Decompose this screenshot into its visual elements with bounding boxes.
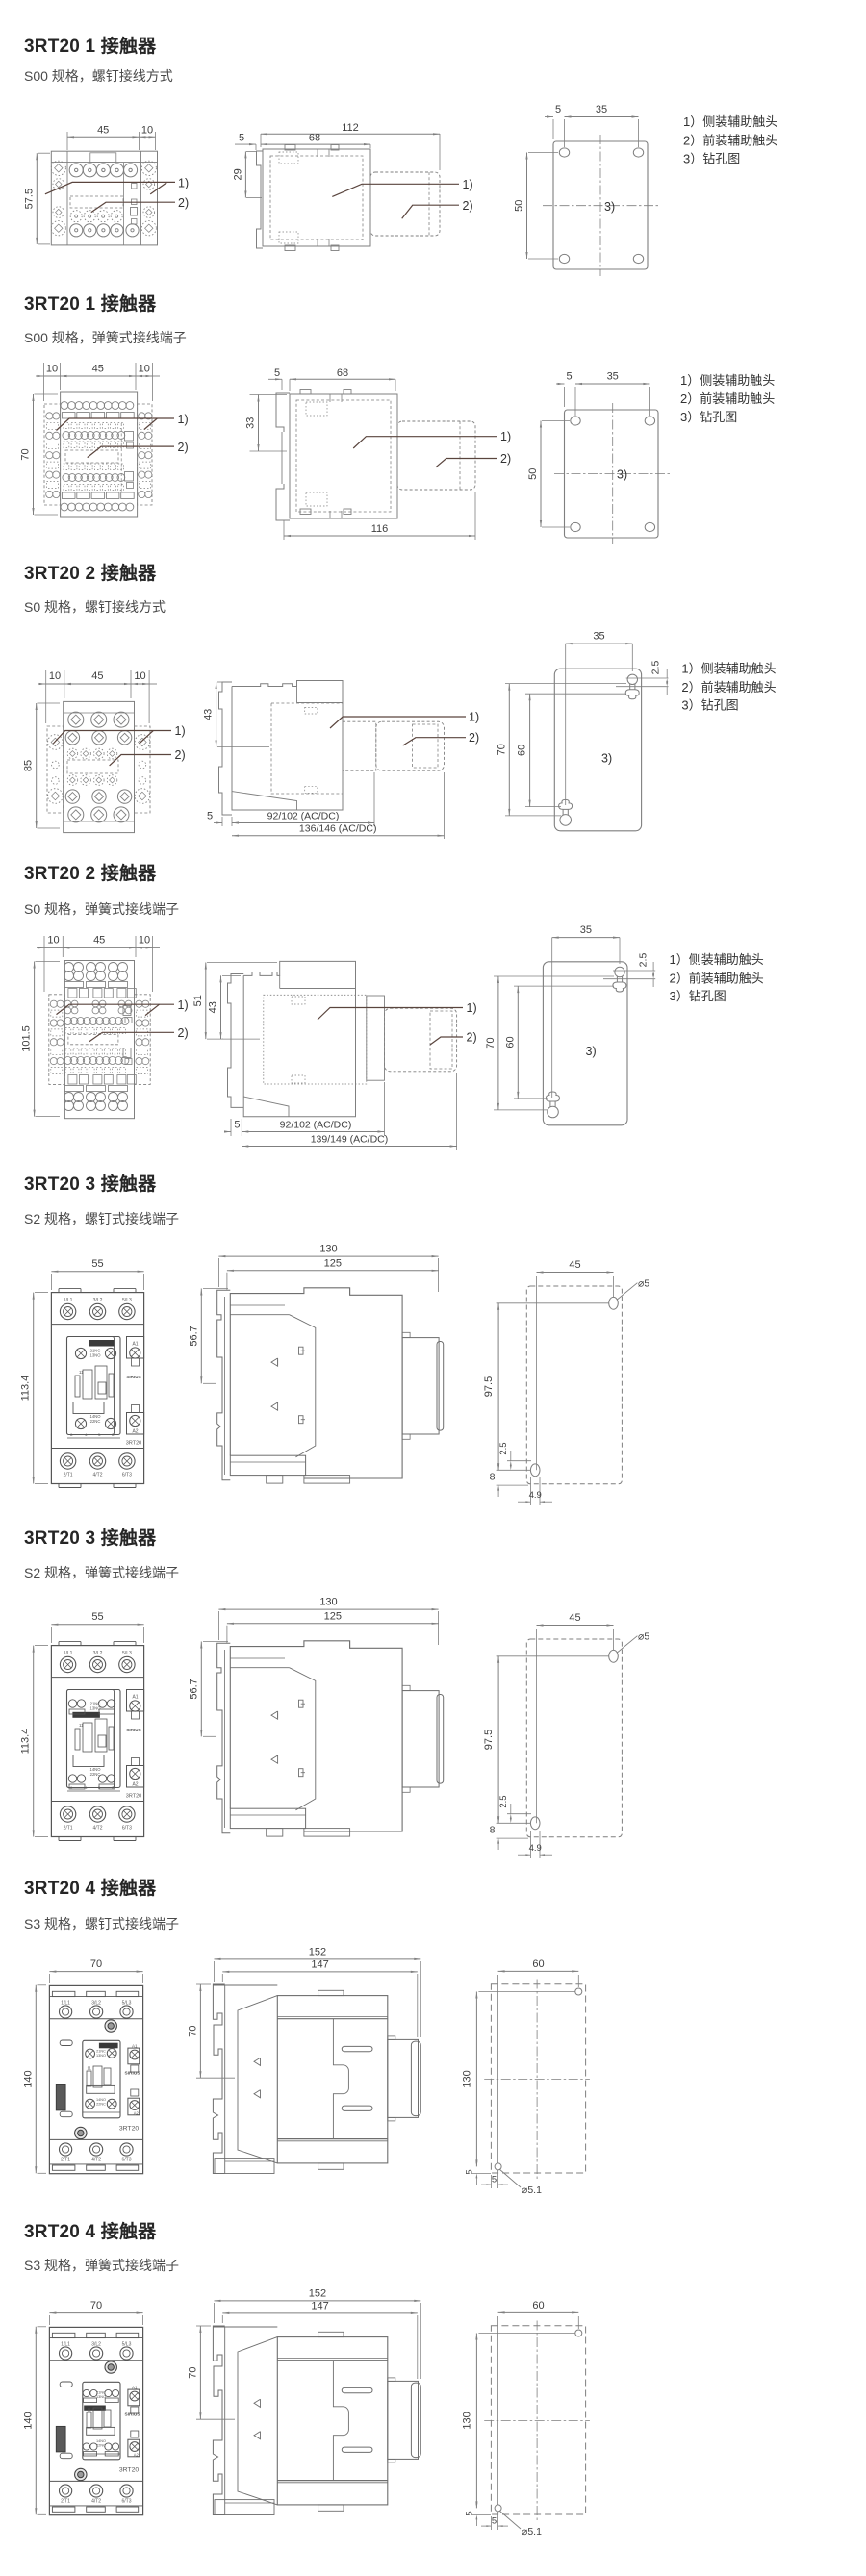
svg-text:8: 8 xyxy=(490,1825,496,1836)
svg-text:3RT20: 3RT20 xyxy=(126,1794,141,1800)
svg-text:97.5: 97.5 xyxy=(483,1730,495,1750)
svg-text:SIRIUS: SIRIUS xyxy=(125,2071,141,2077)
svg-text:140: 140 xyxy=(22,2070,34,2087)
svg-text:14NO: 14NO xyxy=(96,2098,106,2102)
svg-text:3/L2: 3/L2 xyxy=(93,1651,103,1656)
svg-text:A2: A2 xyxy=(134,2453,140,2458)
svg-text:2): 2) xyxy=(178,1026,189,1040)
svg-text:35: 35 xyxy=(596,104,607,115)
svg-text:11: 11 xyxy=(88,2408,92,2412)
svg-text:92/102 (AC/DC): 92/102 (AC/DC) xyxy=(267,811,340,822)
svg-text:6/T3: 6/T3 xyxy=(122,1473,132,1478)
svg-text:2.5: 2.5 xyxy=(638,953,649,968)
svg-text:8: 8 xyxy=(490,1472,496,1483)
svg-text:10: 10 xyxy=(49,670,61,682)
svg-text:2）前装辅助触头: 2）前装辅助触头 xyxy=(670,972,764,986)
svg-text:3): 3) xyxy=(601,752,612,766)
svg-text:70: 70 xyxy=(496,744,507,755)
svg-text:125: 125 xyxy=(324,1257,342,1269)
svg-text:2): 2) xyxy=(178,441,189,454)
svg-text:35: 35 xyxy=(580,924,592,936)
svg-text:130: 130 xyxy=(319,1244,337,1255)
svg-text:136/146 (AC/DC): 136/146 (AC/DC) xyxy=(299,823,377,835)
svg-text:2/T1: 2/T1 xyxy=(61,2499,70,2505)
svg-text:3/L2: 3/L2 xyxy=(93,1298,103,1303)
svg-text:14NO: 14NO xyxy=(96,2439,106,2443)
svg-text:60: 60 xyxy=(517,745,528,756)
svg-text:2）前装辅助触头: 2）前装辅助触头 xyxy=(683,134,777,148)
svg-text:SIRIUS: SIRIUS xyxy=(125,2412,141,2418)
svg-text:51: 51 xyxy=(192,995,204,1006)
svg-text:5: 5 xyxy=(555,104,561,115)
svg-text:5: 5 xyxy=(234,1120,240,1131)
svg-text:8.: 8. xyxy=(70,1786,73,1790)
svg-text:130: 130 xyxy=(319,1597,337,1608)
svg-text:5: 5 xyxy=(464,2169,474,2174)
svg-text:43: 43 xyxy=(208,1001,219,1013)
svg-text:70: 70 xyxy=(187,2025,198,2036)
svg-text:5: 5 xyxy=(566,371,572,383)
svg-text:1）侧装辅助触头: 1）侧装辅助触头 xyxy=(670,952,764,967)
svg-text:125: 125 xyxy=(324,1610,342,1622)
svg-text:152: 152 xyxy=(309,1946,326,1957)
svg-text:60: 60 xyxy=(532,1958,544,1970)
svg-text:22NC: 22NC xyxy=(96,2103,106,2107)
svg-text:10: 10 xyxy=(47,935,59,947)
svg-text:1）侧装辅助触头: 1）侧装辅助触头 xyxy=(681,662,776,676)
svg-text:6/T3: 6/T3 xyxy=(121,2158,131,2163)
svg-text:13NO: 13NO xyxy=(90,1706,102,1711)
svg-text:⌀5.1: ⌀5.1 xyxy=(522,2185,542,2196)
svg-text:3）钻孔图: 3）钻孔图 xyxy=(683,152,740,166)
svg-text:113.4: 113.4 xyxy=(20,1729,32,1755)
svg-text:4.9: 4.9 xyxy=(529,1490,542,1501)
svg-text:68: 68 xyxy=(337,367,348,379)
svg-text:70: 70 xyxy=(485,1037,497,1048)
svg-text:10: 10 xyxy=(46,364,58,375)
svg-text:70: 70 xyxy=(187,2366,198,2378)
svg-text:139/149 (AC/DC): 139/149 (AC/DC) xyxy=(311,1134,389,1146)
svg-text:50: 50 xyxy=(527,468,539,480)
svg-text:8.: 8. xyxy=(112,1433,115,1437)
svg-text:5.: 5. xyxy=(98,1433,101,1437)
svg-text:2/T1: 2/T1 xyxy=(64,1473,73,1478)
svg-text:22NC: 22NC xyxy=(90,1419,101,1424)
svg-text:13NO: 13NO xyxy=(90,1353,102,1358)
svg-text:2): 2) xyxy=(463,199,473,213)
svg-text:2.5: 2.5 xyxy=(650,661,662,675)
svg-text:70: 70 xyxy=(90,2300,102,2311)
svg-text:5/L3: 5/L3 xyxy=(122,1298,132,1303)
svg-text:152: 152 xyxy=(309,2287,326,2299)
svg-text:A2: A2 xyxy=(132,1782,138,1788)
svg-text:10: 10 xyxy=(141,125,153,137)
svg-text:60: 60 xyxy=(504,1036,516,1048)
svg-text:⌀5: ⌀5 xyxy=(638,1278,649,1290)
svg-text:116: 116 xyxy=(371,523,389,535)
svg-text:2): 2) xyxy=(178,196,189,210)
svg-text:1): 1) xyxy=(463,178,473,191)
svg-text:4.: 4. xyxy=(85,1433,88,1437)
svg-text:5: 5 xyxy=(464,2511,474,2515)
svg-text:85: 85 xyxy=(23,760,35,771)
svg-text:3): 3) xyxy=(617,468,627,482)
svg-text:6/T3: 6/T3 xyxy=(121,2499,131,2505)
svg-text:112: 112 xyxy=(342,122,359,134)
svg-text:5: 5 xyxy=(207,811,213,822)
svg-text:11: 11 xyxy=(88,2066,92,2071)
svg-text:5/L3: 5/L3 xyxy=(122,1651,132,1656)
svg-text:4/T2: 4/T2 xyxy=(91,2499,101,2505)
svg-text:1): 1) xyxy=(467,1001,477,1015)
svg-text:97.5: 97.5 xyxy=(483,1376,495,1397)
svg-text:55: 55 xyxy=(91,1258,103,1270)
svg-text:8.: 8. xyxy=(70,1433,73,1437)
svg-text:45: 45 xyxy=(93,935,105,947)
svg-text:70: 70 xyxy=(20,448,32,460)
svg-text:1): 1) xyxy=(469,711,479,724)
svg-text:1): 1) xyxy=(178,998,189,1012)
svg-text:13NO: 13NO xyxy=(96,2395,106,2399)
svg-text:130: 130 xyxy=(461,2412,472,2429)
svg-text:21NC: 21NC xyxy=(96,2050,106,2054)
svg-text:68: 68 xyxy=(309,133,320,144)
svg-text:3）钻孔图: 3）钻孔图 xyxy=(680,410,737,424)
svg-text:2/T1: 2/T1 xyxy=(64,1826,73,1831)
svg-text:45: 45 xyxy=(569,1259,580,1271)
svg-text:2): 2) xyxy=(467,1031,477,1045)
svg-text:4.: 4. xyxy=(85,1786,88,1790)
svg-text:A2: A2 xyxy=(132,1429,138,1435)
svg-text:2.5: 2.5 xyxy=(498,1442,509,1454)
svg-text:3): 3) xyxy=(586,1045,597,1058)
svg-text:SIRIUS: SIRIUS xyxy=(126,1375,140,1379)
svg-text:5.: 5. xyxy=(98,1786,101,1790)
svg-text:3RT20: 3RT20 xyxy=(119,2126,139,2133)
svg-text:43: 43 xyxy=(203,709,215,720)
svg-text:SIRIUS: SIRIUS xyxy=(126,1728,140,1732)
svg-text:22NC: 22NC xyxy=(90,1772,101,1777)
svg-text:35: 35 xyxy=(607,371,619,383)
svg-text:4/T2: 4/T2 xyxy=(91,2158,101,2163)
svg-text:10: 10 xyxy=(139,364,150,375)
svg-text:33: 33 xyxy=(245,417,257,429)
svg-text:45: 45 xyxy=(97,125,109,137)
svg-text:1/L1: 1/L1 xyxy=(64,1651,73,1656)
svg-text:1): 1) xyxy=(500,430,511,443)
svg-text:1): 1) xyxy=(175,724,186,738)
svg-text:A2: A2 xyxy=(134,2111,140,2116)
svg-text:1）侧装辅助触头: 1）侧装辅助触头 xyxy=(683,114,777,129)
svg-text:4/T2: 4/T2 xyxy=(92,1826,102,1831)
svg-text:2): 2) xyxy=(175,748,186,762)
svg-text:1): 1) xyxy=(178,413,189,426)
svg-text:1）侧装辅助触头: 1）侧装辅助触头 xyxy=(680,373,775,388)
svg-text:5: 5 xyxy=(492,2516,497,2527)
svg-text:45: 45 xyxy=(91,670,103,682)
svg-text:70: 70 xyxy=(90,1958,102,1970)
svg-text:55: 55 xyxy=(91,1611,103,1623)
svg-text:1/L1: 1/L1 xyxy=(64,1298,73,1303)
svg-text:130: 130 xyxy=(461,2070,472,2087)
svg-text:2): 2) xyxy=(469,731,479,745)
svg-text:35: 35 xyxy=(593,631,604,643)
svg-text:147: 147 xyxy=(311,2300,328,2311)
svg-text:92/102 (AC/DC): 92/102 (AC/DC) xyxy=(280,1120,352,1131)
svg-text:13NO: 13NO xyxy=(96,2054,106,2058)
svg-text:4/T2: 4/T2 xyxy=(92,1473,102,1478)
svg-text:4.9: 4.9 xyxy=(529,1843,542,1854)
svg-text:147: 147 xyxy=(311,1958,328,1970)
svg-text:2/T1: 2/T1 xyxy=(61,2158,70,2163)
svg-text:10: 10 xyxy=(139,935,150,947)
svg-text:A1: A1 xyxy=(132,1342,138,1348)
svg-text:50: 50 xyxy=(514,200,525,212)
svg-text:3): 3) xyxy=(604,200,615,214)
svg-text:21NC: 21NC xyxy=(96,2391,106,2395)
svg-text:5: 5 xyxy=(239,133,244,144)
svg-text:8.: 8. xyxy=(112,1786,115,1790)
svg-text:101.5: 101.5 xyxy=(21,1025,33,1052)
svg-text:22NC: 22NC xyxy=(96,2444,106,2448)
svg-text:56.7: 56.7 xyxy=(188,1679,199,1699)
svg-text:2): 2) xyxy=(500,452,511,466)
svg-text:113.4: 113.4 xyxy=(20,1376,32,1402)
svg-text:2.5: 2.5 xyxy=(498,1795,509,1807)
svg-text:45: 45 xyxy=(92,364,104,375)
svg-text:3RT20: 3RT20 xyxy=(126,1441,141,1447)
svg-text:60: 60 xyxy=(532,2300,544,2311)
svg-text:3RT20: 3RT20 xyxy=(119,2467,139,2474)
svg-text:140: 140 xyxy=(22,2412,34,2429)
svg-text:57.5: 57.5 xyxy=(24,189,36,209)
svg-text:2）前装辅助触头: 2）前装辅助触头 xyxy=(681,680,776,695)
svg-text:1): 1) xyxy=(178,176,189,189)
svg-text:5: 5 xyxy=(492,2175,497,2185)
svg-text:3）钻孔图: 3）钻孔图 xyxy=(670,989,726,1003)
svg-text:2）前装辅助触头: 2）前装辅助触头 xyxy=(680,391,775,406)
svg-text:5: 5 xyxy=(274,367,280,379)
svg-text:A1: A1 xyxy=(132,1695,138,1701)
svg-text:3）钻孔图: 3）钻孔图 xyxy=(681,698,738,713)
svg-text:56.7: 56.7 xyxy=(188,1326,199,1346)
svg-text:45: 45 xyxy=(569,1612,580,1624)
svg-text:⌀5.1: ⌀5.1 xyxy=(522,2526,542,2538)
svg-text:10: 10 xyxy=(134,670,145,682)
svg-text:6/T3: 6/T3 xyxy=(122,1826,132,1831)
svg-text:29: 29 xyxy=(233,168,244,180)
svg-text:⌀5: ⌀5 xyxy=(638,1631,649,1643)
